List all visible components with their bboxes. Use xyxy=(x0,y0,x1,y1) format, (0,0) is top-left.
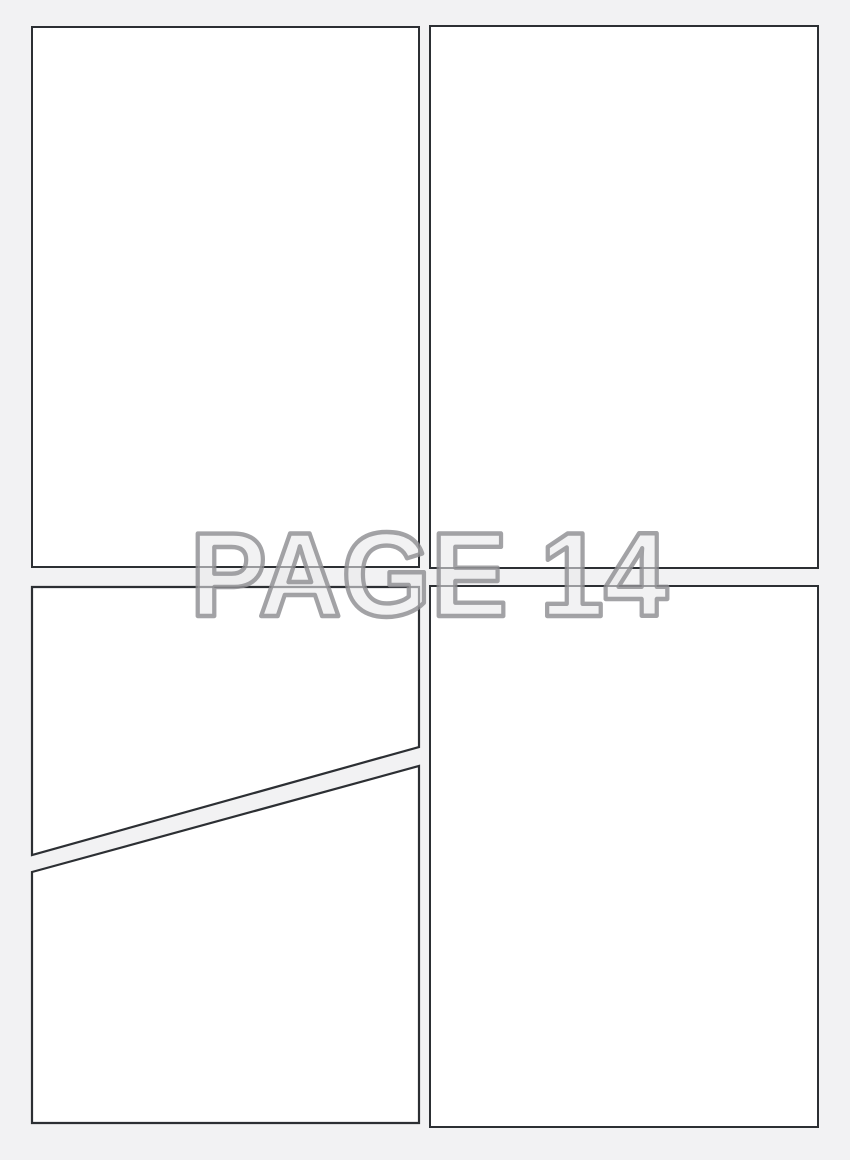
panel-bottom-right xyxy=(429,585,819,1128)
panel-top-left xyxy=(31,26,420,568)
comic-page-template: PAGE 14 xyxy=(0,0,850,1160)
panel-bottom-left-lower xyxy=(32,766,419,1123)
panel-bottom-left-upper xyxy=(32,587,419,855)
panel-top-right xyxy=(429,25,819,569)
